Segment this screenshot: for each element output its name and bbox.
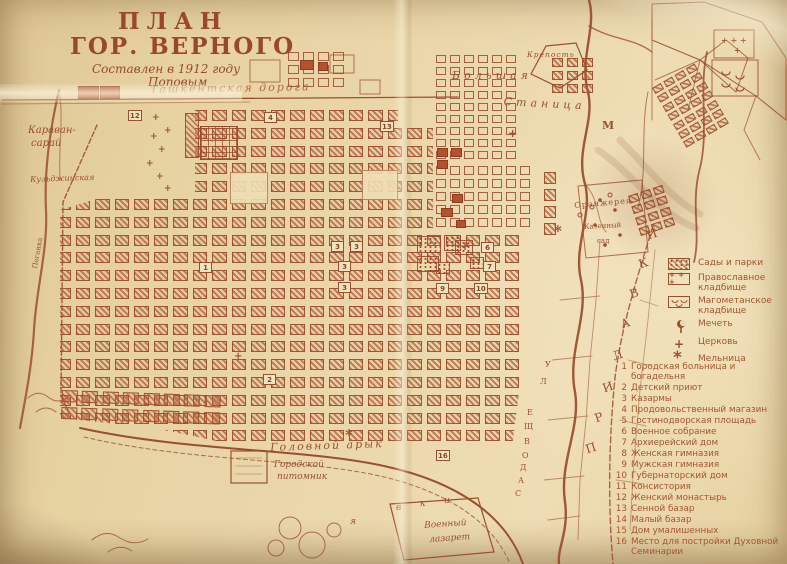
block-grid [436,166,534,231]
orthodox-cemetery-symbol: + + + [668,273,698,285]
index-number: 13 [612,504,631,514]
city-block [388,341,403,352]
city-block [362,170,398,200]
city-block [452,194,463,203]
city-block [450,91,460,99]
city-block [368,270,383,281]
index-item: 8Женская гимназия [612,449,784,459]
city-block [329,377,344,388]
city-block [310,235,325,246]
index-item: 10Губернаторский дом [612,471,784,481]
map-label: Е [527,409,533,417]
city-block [232,288,247,299]
city-block [212,430,227,441]
legend-item: Мечеть [668,319,786,334]
city-block [520,192,530,201]
map-marker: 3 [338,282,351,293]
city-block [115,199,130,210]
index-number: 1 [612,362,631,382]
city-block [492,55,502,63]
index-label: Детский приют [631,383,784,393]
city-block [134,199,149,210]
city-block [368,377,383,388]
city-block [212,324,227,335]
city-block [407,341,422,352]
city-block [478,205,488,214]
city-block [470,257,484,269]
map-label: + [460,240,470,252]
city-block [212,359,227,370]
city-block [544,189,556,201]
index-number: 15 [612,526,631,536]
city-block [173,341,188,352]
city-block [232,306,247,317]
city-block [427,430,442,441]
city-block [656,196,668,207]
city-block [76,270,91,281]
city-block [115,217,130,228]
city-block [567,71,578,80]
city-block [388,377,403,388]
city-block [436,127,446,135]
map-label: Ташкентская дорога [150,81,311,95]
city-block [173,306,188,317]
city-block [310,377,325,388]
city-block [318,62,328,71]
city-block [329,306,344,317]
city-block [520,218,530,227]
city-block [310,359,325,370]
city-block [450,115,460,123]
city-block [271,324,286,335]
city-block [115,359,130,370]
index-item: 15Дом умалишенных [612,526,784,536]
city-block [466,430,481,441]
map-marker: 10 [474,283,488,294]
city-block [446,377,461,388]
city-block [290,288,305,299]
map-marker: 4 [264,112,277,123]
city-block [647,211,659,222]
city-block [290,146,305,157]
index-label: Архиерейский дом [631,438,784,448]
index-item: 2Детский приют [612,383,784,393]
city-block [349,199,364,210]
city-block [134,288,149,299]
map-label: Большая [452,70,532,81]
city-block [684,113,696,124]
city-block [134,377,149,388]
index-number: 16 [612,537,631,557]
index-label: Военное собрание [631,427,784,437]
legend-label: Мечеть [698,319,733,329]
city-block [407,413,422,424]
city-block [251,359,266,370]
map-label: Щ [524,423,533,431]
city-block [290,181,305,192]
index-number: 4 [612,405,631,415]
city-block [368,235,383,246]
city-block [436,67,446,75]
city-block [368,341,383,352]
map-title-city: ГОР. ВЕРНОГО [70,33,295,60]
map-label: + [146,160,154,169]
city-block [271,128,286,139]
city-block [407,324,422,335]
index-number: 9 [612,460,631,470]
city-block [329,128,344,139]
city-block [173,324,188,335]
city-block [466,270,481,281]
city-block [567,84,578,93]
city-block [505,288,520,299]
city-block [407,395,422,406]
city-block [154,217,169,228]
city-block [310,413,325,424]
city-block [95,341,110,352]
city-block [95,199,110,210]
city-block [407,146,422,157]
city-block [193,235,208,246]
city-block [115,235,130,246]
city-block [478,91,488,99]
index-label: Казармы [631,394,784,404]
city-block [427,341,442,352]
city-block [450,55,460,63]
map-marker: 1 [199,262,212,273]
city-block [251,395,266,406]
map-label: в [396,504,401,513]
city-block [673,119,685,130]
city-block [632,204,644,215]
city-block [173,235,188,246]
map-label: Крепость [527,51,575,59]
city-block [368,306,383,317]
city-block [505,341,520,352]
city-block [717,118,729,129]
city-block [212,235,227,246]
city-block [349,163,364,174]
city-block [349,395,364,406]
city-block [310,181,325,192]
city-block [212,377,227,388]
city-block [450,179,460,188]
map-label: О [522,452,529,460]
city-block [506,151,516,159]
city-block [76,324,91,335]
city-block [271,235,286,246]
city-block [251,413,266,424]
city-block [368,110,383,121]
city-block [464,166,474,175]
city-block [668,85,680,96]
index-label: Женская гимназия [631,449,784,459]
city-block [95,217,110,228]
city-block [251,270,266,281]
city-block [212,163,227,174]
city-block [288,65,299,74]
city-block [544,172,556,184]
city-block [232,413,247,424]
city-block [368,395,383,406]
city-block [349,306,364,317]
city-block [506,139,516,147]
map-label: С [515,490,521,498]
city-block [644,200,656,211]
city-block [232,252,247,263]
city-block [212,270,227,281]
city-block [368,288,383,299]
city-block [251,146,266,157]
block-grid [552,58,597,97]
city-block [154,306,169,317]
city-block [388,288,403,299]
city-block [154,252,169,263]
city-block [492,127,502,135]
city-block [134,306,149,317]
city-block [122,409,138,422]
index-label: Малый базар [631,515,784,525]
city-block [173,199,188,210]
city-block [232,217,247,228]
map-label: А [518,477,524,485]
city-block [464,179,474,188]
city-block [388,395,403,406]
city-block [388,252,403,263]
city-block [653,185,665,196]
city-block [388,199,403,210]
city-block [417,236,441,253]
map-label: М [602,120,614,131]
index-label: Гостинодворская площадь [631,416,784,426]
city-block [95,288,110,299]
city-block [466,413,481,424]
city-block [232,377,247,388]
city-block [478,192,488,201]
city-block [251,128,266,139]
legend-label: Магометанское кладбище [698,296,786,316]
city-block [662,101,674,112]
city-block [478,151,488,159]
city-block [552,71,563,80]
city-block [173,252,188,263]
city-block [251,252,266,263]
legend-label: Православное кладбище [698,273,786,293]
city-block [349,110,364,121]
city-block [329,413,344,424]
city-block [100,86,120,99]
city-block [407,163,422,174]
city-block [76,217,91,228]
city-block [552,84,563,93]
city-block [290,110,305,121]
city-block [115,377,130,388]
city-block [163,410,179,423]
map-label: У [545,361,551,369]
city-block [164,394,180,407]
city-block [407,377,422,388]
legend-label: Церковь [698,337,738,347]
city-block [368,413,383,424]
city-block [679,104,691,115]
city-block [290,413,305,424]
city-block [492,166,502,175]
map-plan-of-verny: ПЛАН ГОР. ВЕРНОГО Составлен в 1912 году … [0,0,787,564]
map-label: + + + [721,36,747,44]
legend-item: + + +Православное кладбище [668,273,786,293]
index-item: 3Казармы [612,394,784,404]
city-block [143,393,159,406]
city-block [333,65,344,74]
city-block [680,79,692,90]
index-item: 9Мужская гимназия [612,460,784,470]
city-block [506,192,516,201]
city-block [427,395,442,406]
city-block [505,270,520,281]
city-block [329,217,344,228]
city-block [464,55,474,63]
city-block [407,306,422,317]
city-block [81,407,97,420]
city-block [204,395,220,408]
map-index-list: 1Городская больница и богадельня2Детский… [612,362,784,558]
city-block [95,359,110,370]
city-block [329,146,344,157]
city-block [451,148,462,157]
city-block [707,100,719,111]
city-block [232,270,247,281]
city-block [388,359,403,370]
city-block [437,148,448,157]
city-block [485,306,500,317]
city-block [310,395,325,406]
city-block [290,324,305,335]
city-block [505,306,520,317]
index-number: 5 [612,416,631,426]
city-block [436,91,446,99]
index-number: 6 [612,427,631,437]
city-block [466,377,481,388]
city-block [663,217,675,228]
city-block [683,137,695,148]
city-block [173,288,188,299]
city-block [368,252,383,263]
city-block [204,411,220,424]
city-block [427,413,442,424]
city-block [635,215,647,226]
city-block [290,235,305,246]
city-block [437,160,448,169]
city-block [485,324,500,335]
city-block [76,252,91,263]
city-block [76,359,91,370]
city-block [505,324,520,335]
city-block [62,390,78,403]
city-block [290,199,305,210]
city-block [271,341,286,352]
city-block [232,110,247,121]
city-block [520,179,530,188]
city-block [212,110,227,121]
index-label: Дом умалишенных [631,526,784,536]
map-marker: 3 [350,241,363,252]
city-block [290,341,305,352]
city-block [506,166,516,175]
city-block [701,115,713,126]
city-block [115,341,130,352]
map-label: Д [520,464,527,472]
map-label: + [508,128,517,139]
city-block [134,217,149,228]
city-block [436,192,446,201]
map-label: В [524,438,530,446]
city-block [271,395,286,406]
city-block [184,394,200,407]
map-marker: 12 [128,110,142,121]
city-block [78,86,99,99]
city-block [271,217,286,228]
city-block [388,413,403,424]
city-block [436,139,446,147]
city-block [691,72,703,83]
city-block [505,395,520,406]
city-block [712,109,724,120]
city-block [478,103,488,111]
map-marker: 13 [380,121,394,132]
city-block [212,341,227,352]
city-block [466,395,481,406]
city-block [485,377,500,388]
city-block [450,127,460,135]
city-block [349,217,364,228]
city-block [464,205,474,214]
city-block [492,151,502,159]
city-block [271,146,286,157]
city-block [310,270,325,281]
city-block [685,88,697,99]
legend-item: +Церковь [668,337,786,351]
city-block [407,359,422,370]
city-block [193,359,208,370]
block-grid [61,390,225,429]
city-block [271,413,286,424]
city-block [251,217,266,228]
city-block [329,324,344,335]
city-block [492,139,502,147]
city-block [388,235,403,246]
city-block [668,110,680,121]
city-block [552,58,563,67]
city-block [333,78,344,87]
city-block [115,306,130,317]
city-block [441,208,453,217]
index-item: 6Военное собрание [612,427,784,437]
city-block [485,395,500,406]
city-block [505,359,520,370]
index-label: Сенной базар [631,504,784,514]
city-block [212,288,227,299]
city-block [212,306,227,317]
map-label: + [164,127,172,136]
city-block [436,103,446,111]
map-marker: 2 [263,374,276,385]
index-item: 11Консистория [612,482,784,492]
city-block [466,306,481,317]
city-block [329,163,344,174]
city-block [329,359,344,370]
city-block [232,235,247,246]
city-block [407,217,422,228]
